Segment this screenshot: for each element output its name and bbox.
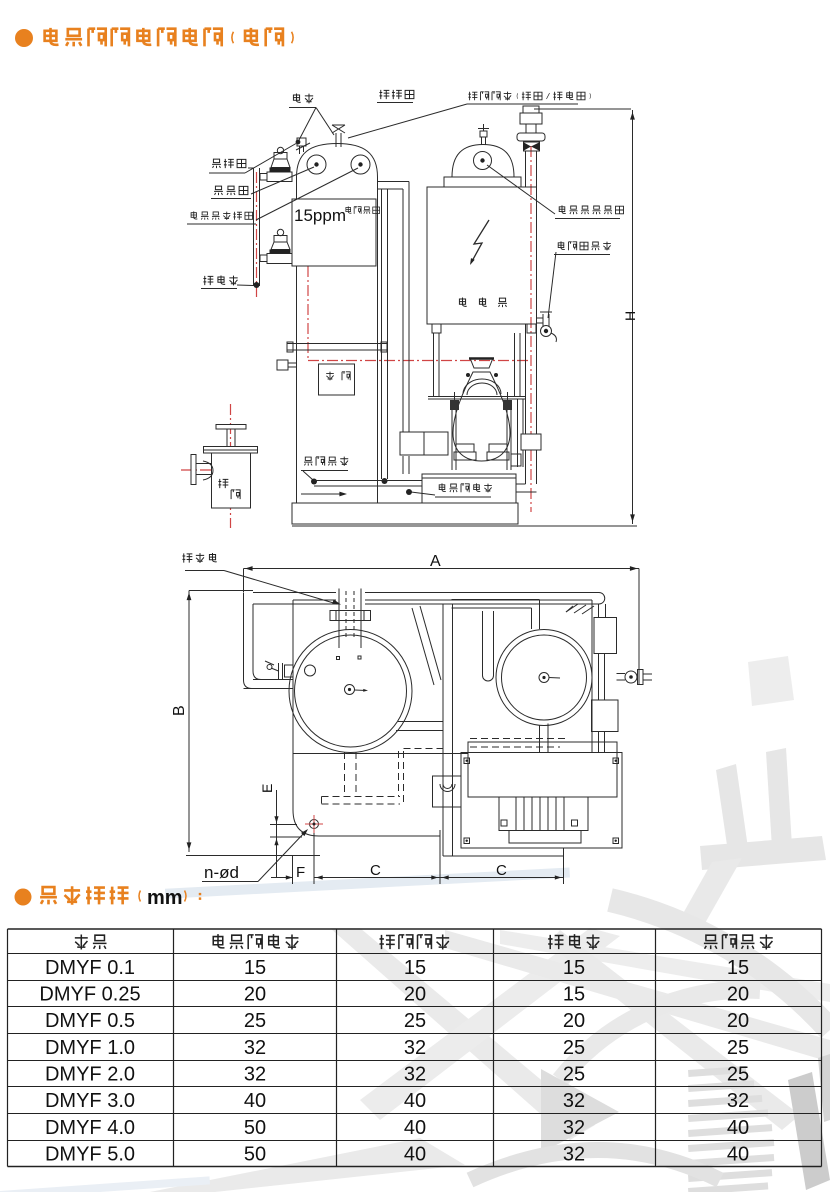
- svg-text:15: 15: [244, 957, 266, 979]
- svg-text:32: 32: [563, 1117, 585, 1139]
- svg-text:DMYF 3.0: DMYF 3.0: [45, 1090, 135, 1112]
- svg-text:32: 32: [727, 1090, 749, 1112]
- svg-text:40: 40: [404, 1144, 426, 1166]
- svg-text:n-ød: n-ød: [204, 863, 239, 882]
- svg-text:40: 40: [404, 1117, 426, 1139]
- svg-text:25: 25: [563, 1064, 585, 1086]
- svg-text:15: 15: [563, 984, 585, 1006]
- svg-text:DMYF 2.0: DMYF 2.0: [45, 1064, 135, 1086]
- svg-text:DMYF 0.1: DMYF 0.1: [45, 957, 135, 979]
- svg-text:F: F: [296, 864, 305, 881]
- svg-text:40: 40: [404, 1090, 426, 1112]
- svg-text:DMYF 0.5: DMYF 0.5: [45, 1010, 135, 1032]
- svg-text:20: 20: [244, 984, 266, 1006]
- svg-text:25: 25: [404, 1010, 426, 1032]
- svg-text:mm: mm: [147, 887, 183, 909]
- svg-text:20: 20: [563, 1010, 585, 1032]
- svg-text:A: A: [430, 553, 441, 570]
- svg-text:E: E: [259, 784, 275, 793]
- svg-text:20: 20: [727, 984, 749, 1006]
- svg-text:15: 15: [563, 957, 585, 979]
- svg-text:20: 20: [404, 984, 426, 1006]
- svg-text:DMYF 5.0: DMYF 5.0: [45, 1144, 135, 1166]
- svg-text:15ppm: 15ppm: [294, 206, 346, 225]
- svg-text:32: 32: [404, 1037, 426, 1059]
- svg-text:50: 50: [244, 1144, 266, 1166]
- svg-text:25: 25: [727, 1037, 749, 1059]
- svg-text:40: 40: [727, 1117, 749, 1139]
- svg-text:32: 32: [244, 1037, 266, 1059]
- svg-text:B: B: [171, 705, 188, 716]
- svg-text:DMYF 0.25: DMYF 0.25: [39, 984, 140, 1006]
- svg-text:C: C: [496, 862, 507, 879]
- svg-text:H: H: [622, 311, 638, 321]
- svg-text:32: 32: [404, 1064, 426, 1086]
- svg-text:25: 25: [244, 1010, 266, 1032]
- svg-text:50: 50: [244, 1117, 266, 1139]
- svg-text:DMYF 4.0: DMYF 4.0: [45, 1117, 135, 1139]
- svg-text:15: 15: [404, 957, 426, 979]
- svg-text:40: 40: [244, 1090, 266, 1112]
- svg-text:20: 20: [727, 1010, 749, 1032]
- svg-text:25: 25: [727, 1064, 749, 1086]
- svg-text:32: 32: [244, 1064, 266, 1086]
- svg-text:15: 15: [727, 957, 749, 979]
- svg-text:C: C: [370, 862, 381, 879]
- svg-text:DMYF 1.0: DMYF 1.0: [45, 1037, 135, 1059]
- svg-text:32: 32: [563, 1090, 585, 1112]
- svg-text:25: 25: [563, 1037, 585, 1059]
- svg-text:40: 40: [727, 1144, 749, 1166]
- svg-text:32: 32: [563, 1144, 585, 1166]
